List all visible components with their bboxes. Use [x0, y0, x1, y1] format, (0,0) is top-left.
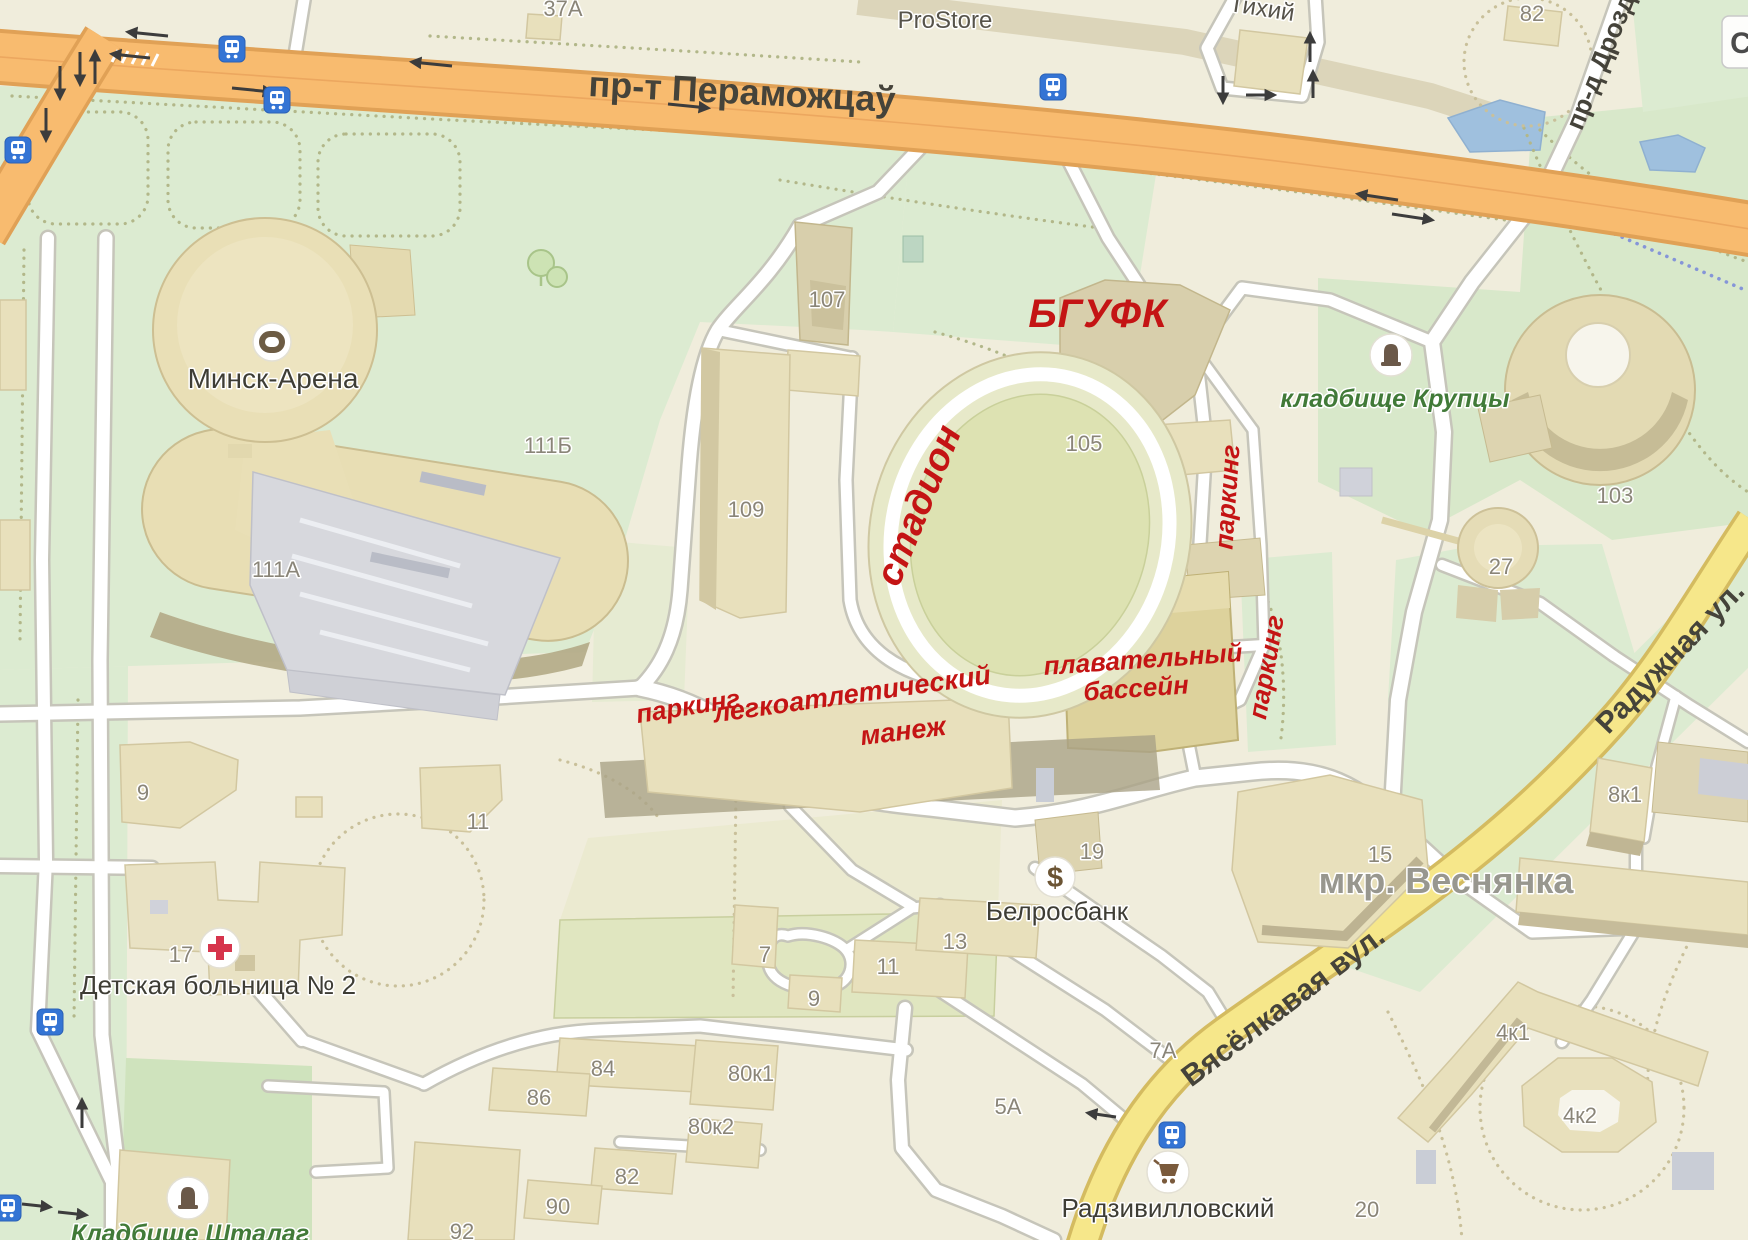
- place-label-belrosbank: Белросбанк: [986, 896, 1129, 926]
- svg-text:15: 15: [1368, 842, 1392, 867]
- svg-text:82: 82: [1520, 1, 1544, 26]
- compass-button[interactable]: С: [1722, 16, 1748, 68]
- svg-text:7А: 7А: [1150, 1038, 1177, 1063]
- svg-text:17: 17: [169, 942, 193, 967]
- place-label-minsk-arena: Минск-Арена: [188, 363, 359, 394]
- arena-icon[interactable]: [253, 323, 291, 361]
- svg-text:19: 19: [1080, 839, 1104, 864]
- tram-stop-icon[interactable]: [37, 1009, 63, 1035]
- svg-text:80к1: 80к1: [728, 1061, 774, 1086]
- svg-text:86: 86: [527, 1085, 551, 1110]
- compass-button-label: С: [1730, 27, 1748, 60]
- shop-cart-icon[interactable]: [1147, 1151, 1189, 1193]
- place-label-shtalag: Кладбище Шталаг: [71, 1220, 309, 1240]
- svg-text:11: 11: [877, 954, 900, 979]
- svg-text:9: 9: [808, 986, 820, 1011]
- place-label-hospital: Детская больница № 2: [80, 970, 356, 1000]
- svg-text:92: 92: [450, 1219, 474, 1240]
- place-label-prostore: ProStore: [898, 7, 993, 34]
- tram-stop-icon[interactable]: [264, 87, 290, 113]
- place-label-krupcy: кладбище Крупцы: [1280, 385, 1509, 413]
- map-canvas[interactable]: $ пр-т Пераможцаў пр-д Дрозд Радужная ул…: [0, 0, 1748, 1240]
- building-8k1: [1586, 758, 1652, 856]
- svg-text:20: 20: [1355, 1197, 1379, 1222]
- svg-text:13: 13: [943, 929, 967, 954]
- svg-text:80к2: 80к2: [688, 1114, 734, 1139]
- svg-text:4к1: 4к1: [1496, 1020, 1530, 1045]
- svg-text:90: 90: [546, 1194, 570, 1219]
- hospital-cross-icon[interactable]: [200, 928, 240, 968]
- cemetery-icon[interactable]: [167, 1177, 209, 1219]
- svg-text:82: 82: [615, 1164, 639, 1189]
- tram-stop-icon[interactable]: [1159, 1122, 1185, 1148]
- svg-text:107: 107: [809, 287, 846, 312]
- svg-text:27: 27: [1489, 554, 1513, 579]
- svg-text:11: 11: [467, 809, 490, 834]
- annotation-bgufk: БГУФК: [1028, 292, 1169, 336]
- svg-text:4к2: 4к2: [1563, 1103, 1597, 1128]
- tram-stop-icon[interactable]: [1040, 74, 1066, 100]
- svg-text:8к1: 8к1: [1608, 782, 1642, 807]
- svg-text:103: 103: [1597, 483, 1634, 508]
- bank-icon[interactable]: $: [1035, 857, 1075, 897]
- tram-stop-icon[interactable]: [0, 1195, 21, 1221]
- place-label-radzivillovsky: Радзивилловский: [1062, 1193, 1275, 1223]
- svg-text:37А: 37А: [543, 0, 582, 21]
- svg-text:5А: 5А: [995, 1094, 1022, 1119]
- svg-text:84: 84: [591, 1056, 615, 1081]
- cemetery-icon[interactable]: [1370, 334, 1412, 376]
- svg-text:7: 7: [759, 942, 771, 967]
- svg-text:109: 109: [728, 497, 765, 522]
- svg-text:111Б: 111Б: [524, 433, 572, 458]
- svg-text:9: 9: [137, 780, 149, 805]
- bank-dollar-glyph: $: [1047, 862, 1063, 894]
- svg-text:105: 105: [1066, 431, 1103, 456]
- tram-stop-icon[interactable]: [219, 36, 245, 62]
- place-label-vesnyanka: мкр. Веснянка: [1319, 860, 1575, 901]
- svg-text:111А: 111А: [252, 557, 300, 582]
- tram-stop-icon[interactable]: [5, 137, 31, 163]
